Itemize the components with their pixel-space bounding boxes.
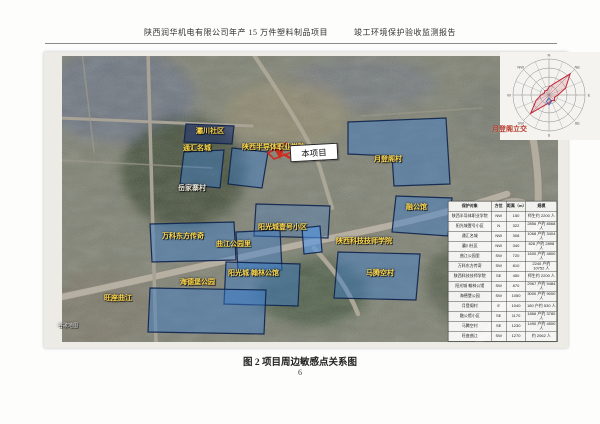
table-cell: 约 2062 人 xyxy=(526,331,557,341)
table-cell: N xyxy=(491,221,506,231)
table-cell: 师生约 2200 人 xyxy=(526,211,557,221)
table-cell: 810 xyxy=(506,261,526,271)
map-label: 万科东方传奇 xyxy=(162,233,204,241)
map-label: 岳家寨村 xyxy=(178,185,206,193)
table-cell: 曲江公园里 xyxy=(448,251,491,261)
table-header-cell: 规模 xyxy=(526,201,557,211)
table-cell: 2240 户约 10752 人 xyxy=(526,261,557,271)
table-row: 马腾空村SE12301490 户约 4500 人 xyxy=(448,321,557,331)
sensitive-table-head-row: 保护对象方位距离（m）规模 xyxy=(448,201,557,211)
table-cell: 1050 xyxy=(506,291,526,301)
table-cell: SW xyxy=(491,281,506,291)
table-cell: 720 xyxy=(506,251,526,261)
table-cell: 322 xyxy=(506,221,526,231)
table-row: 万科东方传奇SW8102240 户约 10752 人 xyxy=(448,261,557,271)
table-row: 融公馆小区SE11701866 户约 3780 人 xyxy=(448,311,557,321)
map-label: 陕西科技技师学院 xyxy=(336,238,398,246)
table-cell: 马腾空村 xyxy=(448,321,491,331)
map-label: 曲江公园里 xyxy=(216,241,251,249)
table-cell: E xyxy=(491,301,506,311)
table-cell: NW xyxy=(491,241,506,251)
table-cell: 融公馆小区 xyxy=(448,311,491,321)
table-cell: 1170 xyxy=(506,311,526,321)
table-cell: 1040 xyxy=(506,301,526,311)
table-cell: 2856 户约 8568 人 xyxy=(526,221,557,231)
page-number: 6 xyxy=(0,368,600,377)
table-cell: 陕西科技技师学院 xyxy=(448,271,491,281)
table-row: 陕西半导体职业学院NW150师生约 2200 人 xyxy=(448,211,557,221)
table-cell: NW xyxy=(491,211,506,221)
table-cell: 陕西半导体职业学院 xyxy=(448,211,491,221)
map-label: 融公馆 xyxy=(406,204,427,212)
header-report-title: 竣工环境保护验收监测报告 xyxy=(354,28,456,37)
table-row: 灞川社区NW340828 户约 2898 人 xyxy=(448,241,557,251)
table-cell: 旺座曲江 xyxy=(448,331,491,341)
table-cell: 师生约 2200 人 xyxy=(526,271,557,281)
table-header-cell: 方位 xyxy=(491,201,506,211)
table-cell: SE xyxy=(491,271,506,281)
table-cell: SE xyxy=(491,311,506,321)
map-figure-photo: NNEESESSWWNW 灞川社区通汇名城陕西半导体职业学院岳家寨村月登阁村月登… xyxy=(44,52,568,348)
table-cell: 3000 户约 9000 人 xyxy=(526,291,557,301)
table-cell: 月登阁村 xyxy=(448,301,491,311)
project-callout: 本项目 xyxy=(290,143,339,162)
table-row: 陕西科技技师学院SE450师生约 2200 人 xyxy=(448,271,557,281)
table-cell: 308 xyxy=(506,231,526,241)
table-cell: 海德堡公园 xyxy=(448,291,491,301)
windrose-direction-label: E xyxy=(588,93,591,98)
table-row: 阳光城 翰林公馆SW8702967 户约 9484 人 xyxy=(448,281,557,291)
table-cell: 828 户约 2898 人 xyxy=(526,241,557,251)
table-cell: 1600 户约 4800 人 xyxy=(526,251,557,261)
table-cell: 1866 户约 3780 人 xyxy=(526,311,557,321)
header-project-title: 陕西润华机电有限公司年产 15 万件塑料制品项目 xyxy=(144,28,328,37)
table-header-cell: 保护对象 xyxy=(448,201,491,211)
table-cell: 阳光城 翰林公馆 xyxy=(448,281,491,291)
table-cell: SW xyxy=(491,331,506,341)
windrose-direction-label: SE xyxy=(575,121,580,126)
map-label: 月登阁立交 xyxy=(492,126,527,134)
map-label: 马腾空村 xyxy=(366,270,394,278)
table-cell: SW xyxy=(491,291,506,301)
table-cell: 450 xyxy=(506,271,526,281)
page-header: 陕西润华机电有限公司年产 15 万件塑料制品项目竣工环境保护验收监测报告 xyxy=(0,27,600,38)
table-cell: 1230 xyxy=(506,321,526,331)
windrose-direction-label: NE xyxy=(575,64,581,69)
table-header-cell: 距离（m） xyxy=(506,201,526,211)
table-cell: 150 xyxy=(506,211,526,221)
figure-caption: 图 2 项目周边敏感点关系图 xyxy=(0,354,600,368)
header-rule xyxy=(45,43,557,44)
map-label: 通汇名城 xyxy=(183,145,211,153)
table-cell: 2967 户约 9484 人 xyxy=(526,281,557,291)
table-cell: 870 xyxy=(506,281,526,291)
table-row: 旺座曲江SW1270约 2062 人 xyxy=(448,331,557,341)
table-row: 阳光城壹号小区N3222856 户约 8568 人 xyxy=(448,221,557,231)
table-cell: SE xyxy=(491,321,506,331)
map-label: 旺座曲江 xyxy=(104,295,132,303)
map-label: 谷歌地图 xyxy=(58,324,78,330)
table-cell: 180 户约 530 人 xyxy=(526,301,557,311)
table-row: 海德堡公园SW10503000 户约 9000 人 xyxy=(448,291,557,301)
table-cell: NW xyxy=(491,231,506,241)
table-cell: 340 xyxy=(506,241,526,251)
table-cell: 通汇名城 xyxy=(448,231,491,241)
sensitive-table-body: 陕西半导体职业学院NW150师生约 2200 人阳光城壹号小区N3222856 … xyxy=(448,211,557,341)
map-label: 灞川社区 xyxy=(196,128,224,136)
table-cell: 灞川社区 xyxy=(448,241,491,251)
table-cell: 阳光城壹号小区 xyxy=(448,221,491,231)
table-cell: 1490 户约 4500 人 xyxy=(526,321,557,331)
map-label: 月登阁村 xyxy=(374,156,402,164)
table-row: 月登阁村E1040180 户约 530 人 xyxy=(448,301,557,311)
table-cell: 万科东方传奇 xyxy=(448,261,491,271)
sensitive-points-table-wrap: 保护对象方位距离（m）规模 陕西半导体职业学院NW150师生约 2200 人阳光… xyxy=(448,201,557,342)
table-cell: SW xyxy=(491,251,506,261)
table-row: 通汇名城NW3081068 户约 3404 人 xyxy=(448,231,557,241)
table-cell: SW xyxy=(491,261,506,271)
table-cell: 1068 户约 3404 人 xyxy=(526,231,557,241)
table-row: 曲江公园里SW7201600 户约 4800 人 xyxy=(448,251,557,261)
map-label: 阳光城壹号小区 xyxy=(258,224,307,232)
sensitive-points-table: 保护对象方位距离（m）规模 陕西半导体职业学院NW150师生约 2200 人阳光… xyxy=(448,201,557,342)
map-label: 阳光城 翰林公馆 xyxy=(228,270,279,278)
table-cell: 1270 xyxy=(506,331,526,341)
project-callout-label: 本项目 xyxy=(301,146,327,159)
map-label: 海德堡公园 xyxy=(180,279,215,287)
